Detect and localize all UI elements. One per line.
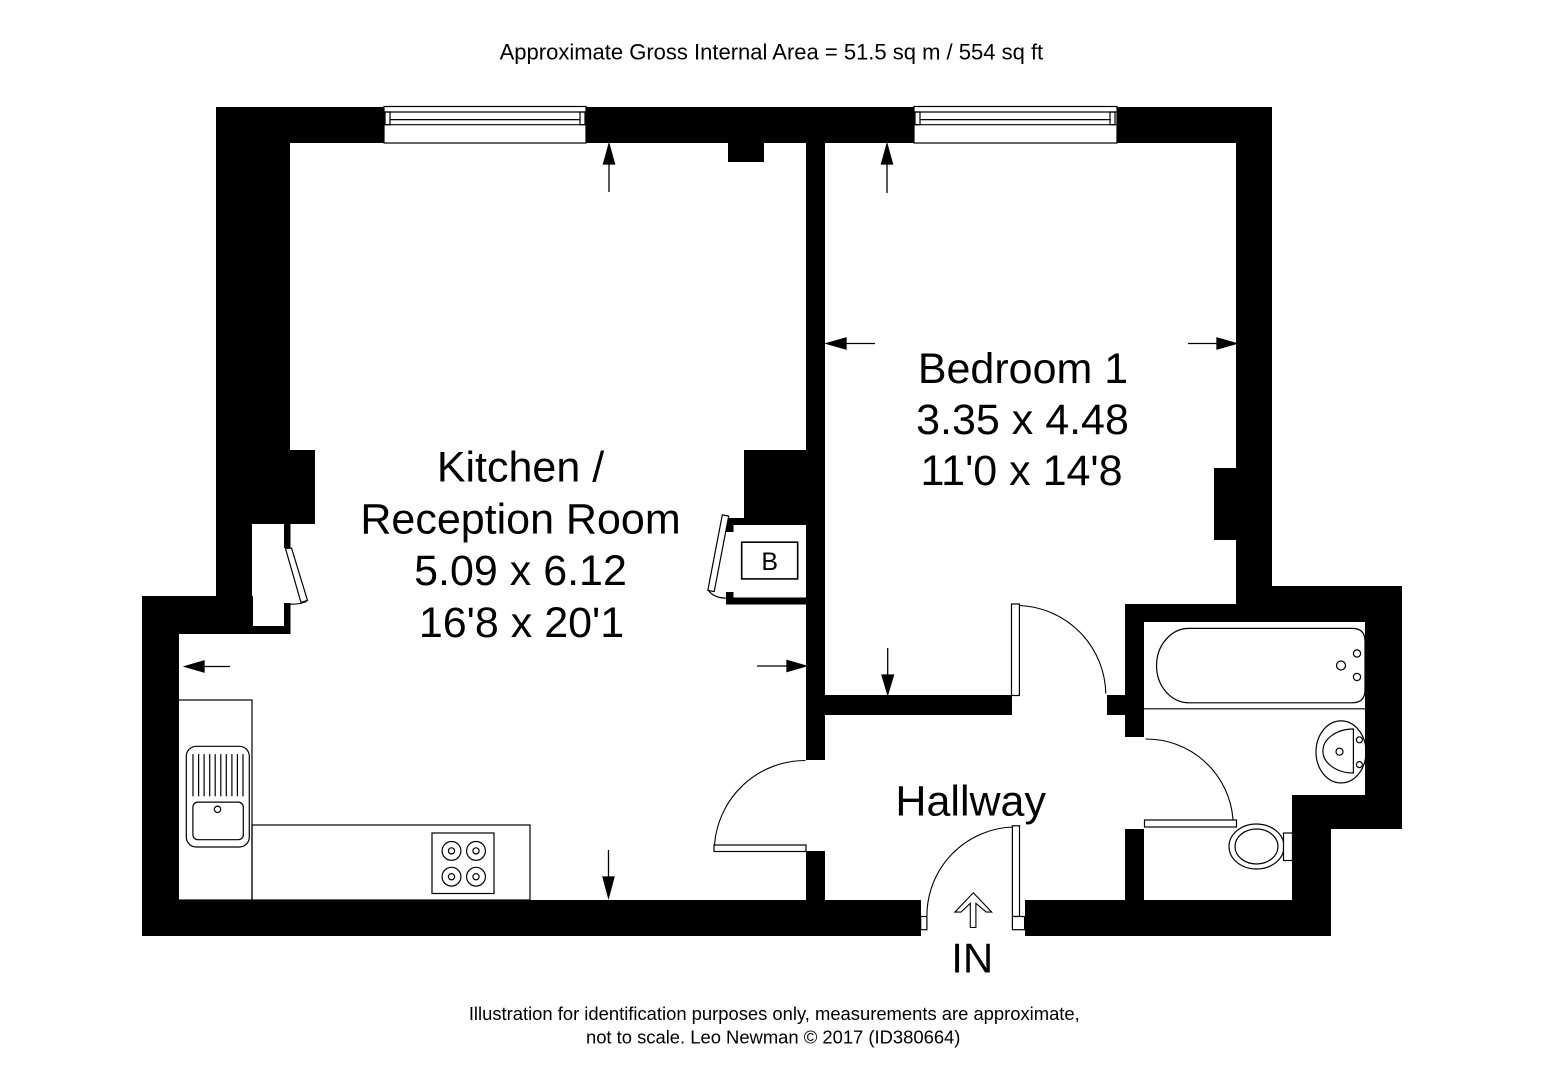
- svg-text:3.35 x 4.48: 3.35 x 4.48: [916, 396, 1129, 444]
- svg-text:11'0 x 14'8: 11'0 x 14'8: [920, 447, 1122, 495]
- svg-text:16'8 x 20'1: 16'8 x 20'1: [419, 599, 624, 647]
- svg-text:Reception Room: Reception Room: [360, 495, 680, 543]
- svg-text:Kitchen /: Kitchen /: [437, 444, 604, 492]
- svg-text:not to scale. Leo Newman © 201: not to scale. Leo Newman © 2017 (ID38066…: [586, 1026, 960, 1047]
- svg-text:Hallway: Hallway: [895, 777, 1046, 825]
- svg-text:Illustration for identificatio: Illustration for identification purposes…: [469, 1003, 1080, 1024]
- svg-text:Approximate Gross Internal Are: Approximate Gross Internal Area = 51.5 s…: [500, 39, 1044, 64]
- svg-text:5.09 x 6.12: 5.09 x 6.12: [414, 547, 627, 595]
- svg-text:IN: IN: [951, 935, 993, 982]
- svg-text:B: B: [761, 548, 778, 576]
- svg-text:Bedroom 1: Bedroom 1: [918, 345, 1128, 393]
